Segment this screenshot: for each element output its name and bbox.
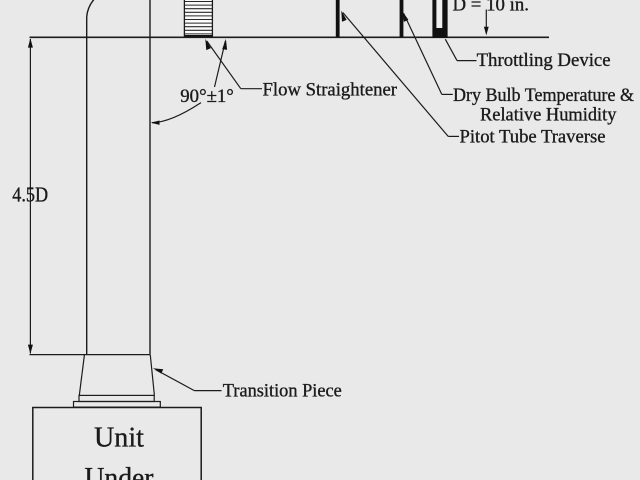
svg-text:Dry Bulb Temperature &: Dry Bulb Temperature & xyxy=(453,85,634,106)
svg-text:Under: Under xyxy=(85,462,154,480)
svg-text:Unit: Unit xyxy=(94,421,144,453)
svg-text:D = 10 in.: D = 10 in. xyxy=(453,0,530,15)
svg-text:4.5D: 4.5D xyxy=(12,183,48,207)
svg-text:Pitot Tube Traverse: Pitot Tube Traverse xyxy=(460,127,606,148)
svg-text:Flow Straightener: Flow Straightener xyxy=(263,79,398,100)
svg-text:Throttling Device: Throttling Device xyxy=(477,50,611,71)
svg-text:Relative Humidity: Relative Humidity xyxy=(480,105,617,126)
svg-text:90°±1°: 90°±1° xyxy=(180,86,234,107)
svg-text:Transition Piece: Transition Piece xyxy=(223,380,342,401)
